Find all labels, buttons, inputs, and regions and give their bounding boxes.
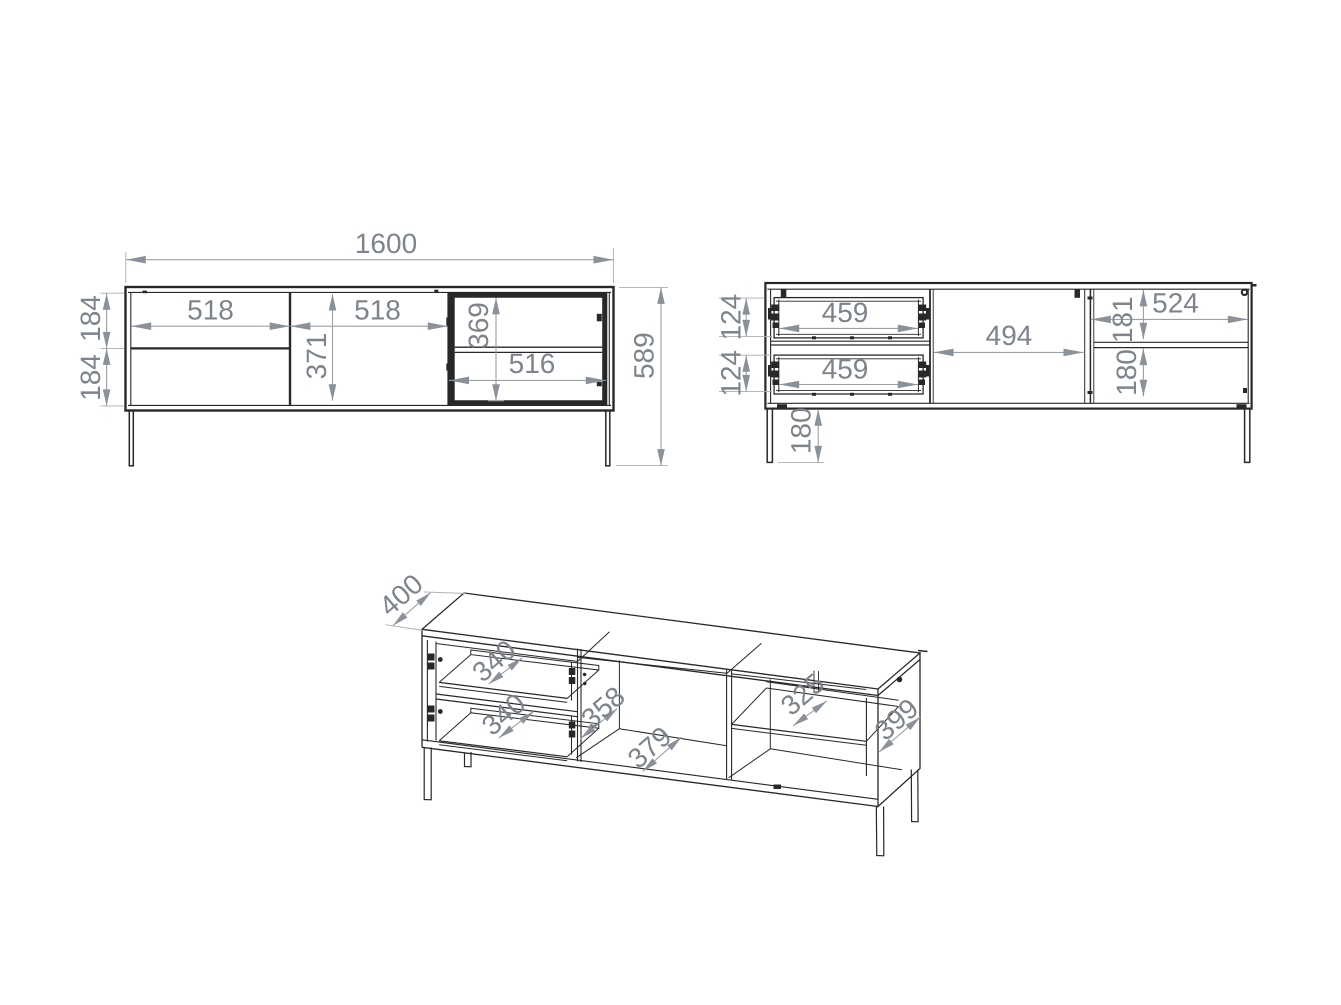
svg-text:400: 400 (373, 568, 429, 622)
svg-text:494: 494 (986, 320, 1033, 351)
svg-text:524: 524 (1152, 288, 1199, 319)
svg-text:184: 184 (75, 354, 106, 401)
svg-text:1600: 1600 (355, 228, 417, 259)
svg-text:518: 518 (354, 295, 401, 326)
svg-text:180: 180 (1111, 349, 1142, 396)
svg-text:180: 180 (786, 407, 817, 454)
svg-text:124: 124 (715, 294, 746, 341)
svg-text:371: 371 (301, 333, 332, 380)
svg-text:124: 124 (715, 350, 746, 397)
svg-text:340: 340 (476, 687, 532, 741)
svg-text:184: 184 (75, 295, 106, 342)
svg-text:516: 516 (509, 348, 556, 379)
svg-text:518: 518 (187, 294, 234, 325)
svg-text:459: 459 (822, 297, 869, 328)
svg-text:325: 325 (775, 667, 831, 721)
svg-text:399: 399 (869, 692, 925, 746)
svg-text:369: 369 (463, 302, 494, 349)
svg-text:589: 589 (628, 332, 659, 379)
svg-text:181: 181 (1107, 296, 1138, 343)
svg-text:459: 459 (822, 353, 869, 384)
